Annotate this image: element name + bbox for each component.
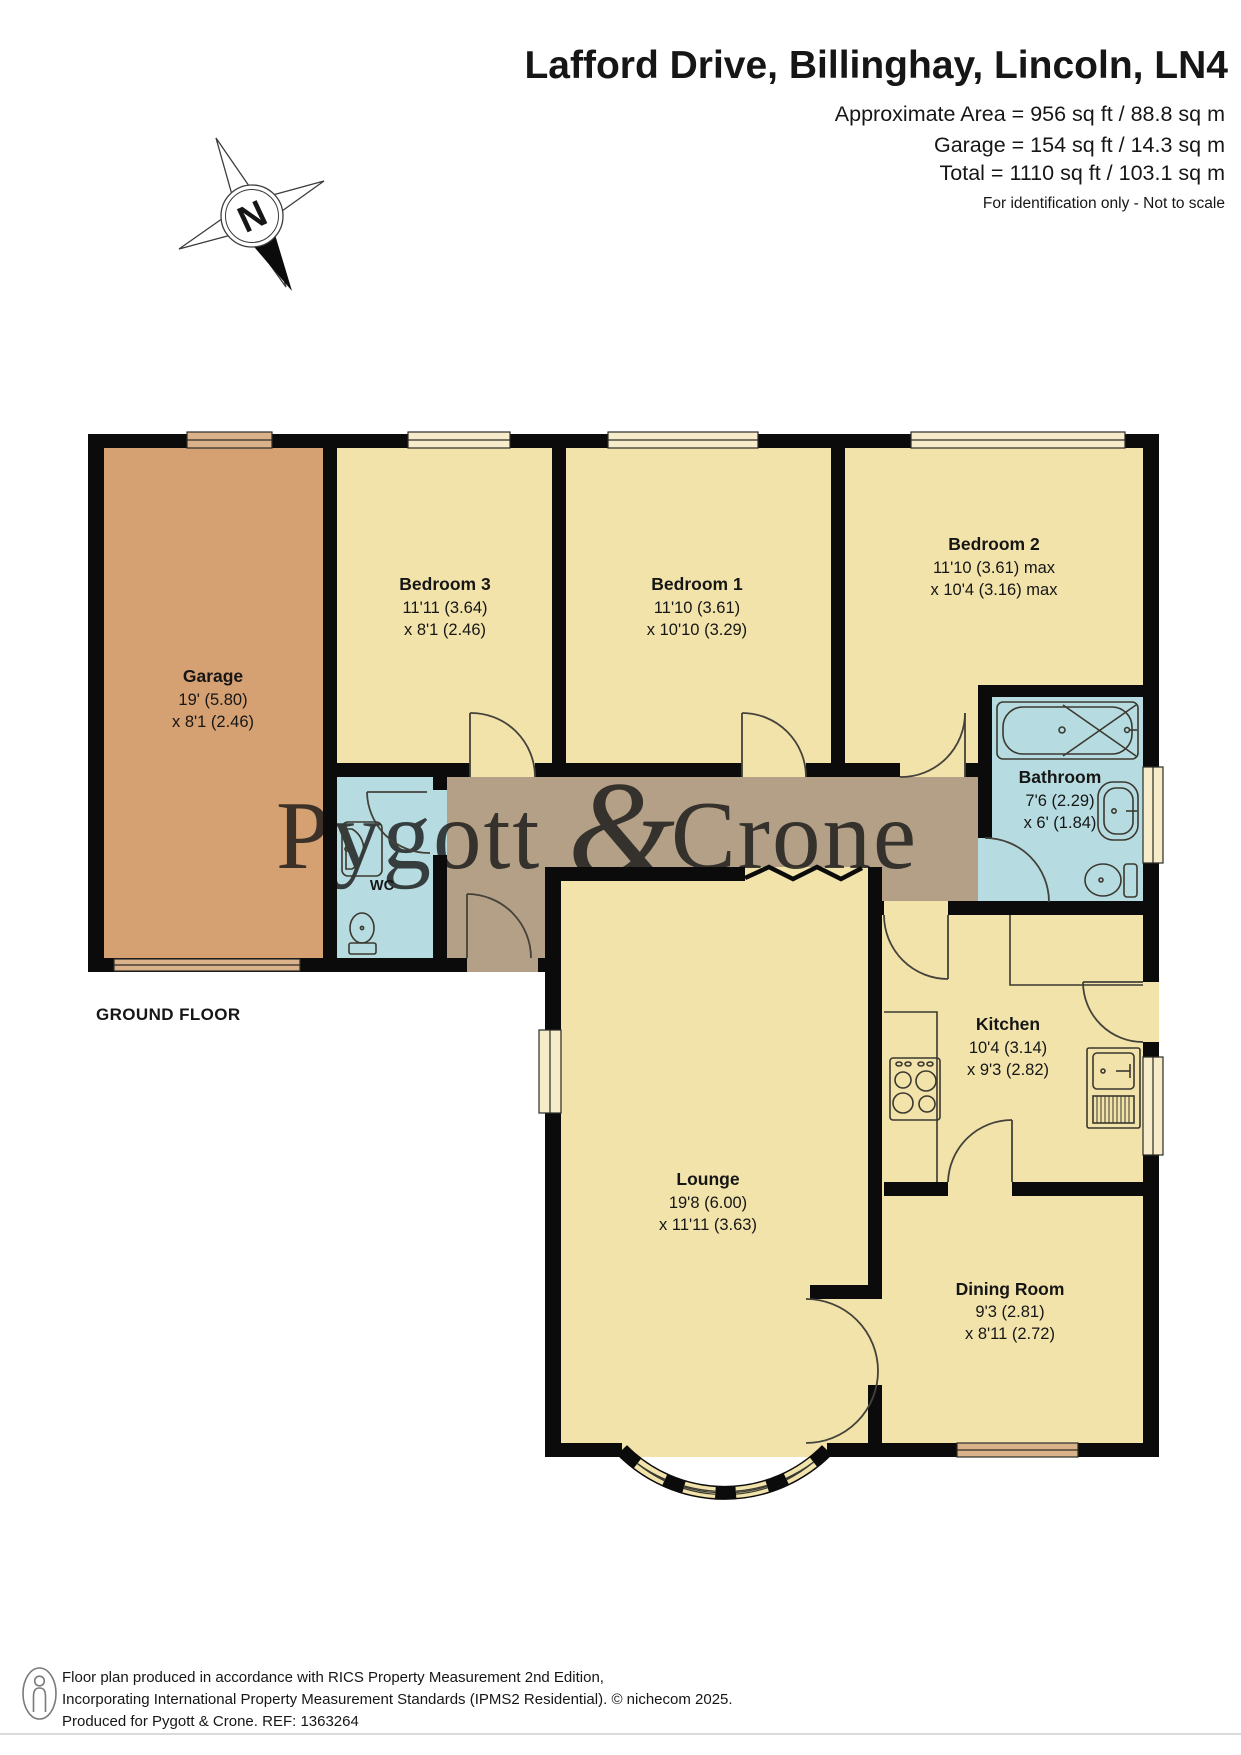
dining-bottom-window <box>957 1443 1078 1457</box>
kitchen-right-window <box>1143 1057 1163 1155</box>
wall-garage-right <box>323 434 337 972</box>
page-title: Lafford Drive, Billinghay, Lincoln, LN4 <box>524 44 1228 87</box>
svg-text:Bedroom 1: Bedroom 1 <box>651 574 743 594</box>
wall-kitchen-top-2 <box>948 901 1143 915</box>
wall-right-upper <box>1143 434 1159 982</box>
kitchen-backdoor-gap <box>1143 982 1159 1042</box>
watermark-part1: Pygott <box>276 782 568 889</box>
bathroom-right-window <box>1143 767 1163 863</box>
svg-text:11'11 (3.64): 11'11 (3.64) <box>402 599 487 617</box>
footer-line-2: Incorporating International Property Mea… <box>62 1691 733 1708</box>
wall-wc-right-upper <box>433 777 447 790</box>
compass: N <box>179 138 324 291</box>
kitchen-label: Kitchen 10'4 (3.14) x 9'3 (2.82) <box>967 1014 1049 1079</box>
wall-bedrow-bottom-4 <box>965 763 992 777</box>
lounge-left-window <box>539 1030 561 1113</box>
area-line-3: Total = 1110 sq ft / 103.1 sq m <box>940 161 1225 185</box>
wall-bottom-lounge <box>545 1443 622 1457</box>
svg-text:Bedroom 2: Bedroom 2 <box>948 534 1040 554</box>
wc-label: WC <box>370 878 395 894</box>
bay-opening-gap <box>622 1443 827 1457</box>
svg-text:10'4 (3.14): 10'4 (3.14) <box>969 1039 1047 1057</box>
svg-text:x 10'4 (3.16) max: x 10'4 (3.16) max <box>931 581 1059 599</box>
bathroom-door-gap <box>978 838 992 902</box>
svg-text:Garage: Garage <box>183 666 244 686</box>
svg-text:Bathroom: Bathroom <box>1019 767 1102 787</box>
exterior-cutout <box>88 972 545 1458</box>
floorplan-page: Pygott &Crone <box>0 0 1241 1755</box>
svg-text:19'8 (6.00): 19'8 (6.00) <box>669 1194 747 1212</box>
wall-lounge-left <box>545 867 561 1457</box>
svg-text:x 8'11 (2.72): x 8'11 (2.72) <box>965 1325 1055 1343</box>
svg-text:11'10 (3.61): 11'10 (3.61) <box>654 599 740 617</box>
svg-text:7'6 (2.29): 7'6 (2.29) <box>1025 792 1094 810</box>
bedroom3-label: Bedroom 3 11'11 (3.64) x 8'1 (2.46) <box>399 574 491 639</box>
svg-text:Lounge: Lounge <box>676 1169 739 1189</box>
wall-kitchen-bottom-2 <box>1012 1182 1143 1196</box>
wall-kitchen-top-1 <box>871 901 884 915</box>
bedroom2-window <box>911 432 1125 448</box>
area-line-1: Approximate Area = 956 sq ft / 88.8 sq m <box>835 102 1225 126</box>
footer-line-3: Produced for Pygott & Crone. REF: 136326… <box>62 1713 359 1730</box>
bathroom-label: Bathroom 7'6 (2.29) x 6' (1.84) <box>1019 767 1102 832</box>
footer-text: Floor plan produced in accordance with R… <box>62 1669 733 1730</box>
svg-text:9'3 (2.81): 9'3 (2.81) <box>975 1303 1044 1321</box>
wall-left <box>88 434 104 972</box>
person-icon <box>23 1668 56 1719</box>
area-line-2: Garage = 154 sq ft / 14.3 sq m <box>934 133 1225 157</box>
bedroom3-window <box>408 432 510 448</box>
bedroom1-label: Bedroom 1 11'10 (3.61) x 10'10 (3.29) <box>647 574 747 639</box>
floorplan-canvas: Pygott &Crone <box>0 0 1241 1755</box>
wall-kitchen-bottom-1 <box>884 1182 948 1196</box>
garage-label: Garage 19' (5.80) x 8'1 (2.46) <box>172 666 254 731</box>
svg-text:Bedroom 3: Bedroom 3 <box>399 574 491 594</box>
svg-text:Dining Room: Dining Room <box>956 1279 1065 1299</box>
footer: Floor plan produced in accordance with R… <box>0 1668 1241 1734</box>
svg-text:WC: WC <box>370 878 395 894</box>
svg-text:x 10'10 (3.29): x 10'10 (3.29) <box>647 621 747 639</box>
wall-bedrow-bottom-3 <box>806 763 900 777</box>
wall-bedrow-bottom-2 <box>535 763 742 777</box>
wall-wc-right-lower <box>433 855 447 958</box>
garage-top-window <box>187 432 272 448</box>
svg-text:x 8'1 (2.46): x 8'1 (2.46) <box>172 713 254 731</box>
wall-bed3-bed1 <box>552 434 566 763</box>
bedroom1-window <box>608 432 758 448</box>
wall-bedrow-bottom-1 <box>337 763 470 777</box>
svg-text:11'10 (3.61) max: 11'10 (3.61) max <box>933 559 1056 577</box>
svg-text:Kitchen: Kitchen <box>976 1014 1040 1034</box>
svg-text:x 11'11 (3.63): x 11'11 (3.63) <box>659 1216 757 1234</box>
ground-floor-label: GROUND FLOOR <box>96 1005 241 1024</box>
wall-hall-bottom <box>545 867 745 881</box>
svg-text:19' (5.80): 19' (5.80) <box>178 691 247 709</box>
wall-bathroom-left <box>978 685 992 838</box>
wall-dining-stub <box>810 1285 882 1299</box>
svg-text:x 6' (1.84): x 6' (1.84) <box>1024 814 1097 832</box>
wall-divider-upper <box>868 867 882 1285</box>
front-door-gap <box>467 958 538 972</box>
svg-text:x 8'1 (2.46): x 8'1 (2.46) <box>404 621 486 639</box>
bedroom2-label: Bedroom 2 11'10 (3.61) max x 10'4 (3.16)… <box>931 534 1059 599</box>
garage-door <box>114 959 300 971</box>
wall-bed1-bed2 <box>831 434 845 763</box>
disclaimer-note: For identification only - Not to scale <box>983 195 1225 212</box>
header: Lafford Drive, Billinghay, Lincoln, LN4 … <box>524 44 1228 212</box>
svg-text:x 9'3 (2.82): x 9'3 (2.82) <box>967 1061 1049 1079</box>
wall-bathroom-top <box>978 685 1143 697</box>
footer-line-1: Floor plan produced in accordance with R… <box>62 1669 604 1686</box>
